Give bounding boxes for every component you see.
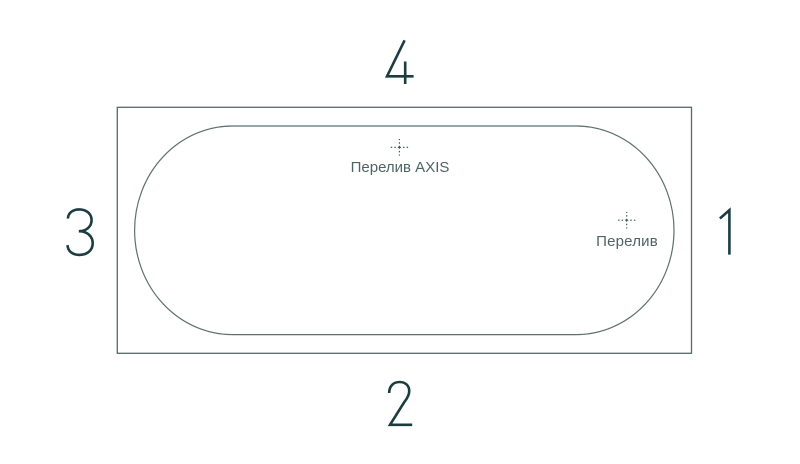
- svg-text:Перелив AXIS: Перелив AXIS: [351, 159, 450, 176]
- svg-text:Перелив: Перелив: [596, 233, 658, 250]
